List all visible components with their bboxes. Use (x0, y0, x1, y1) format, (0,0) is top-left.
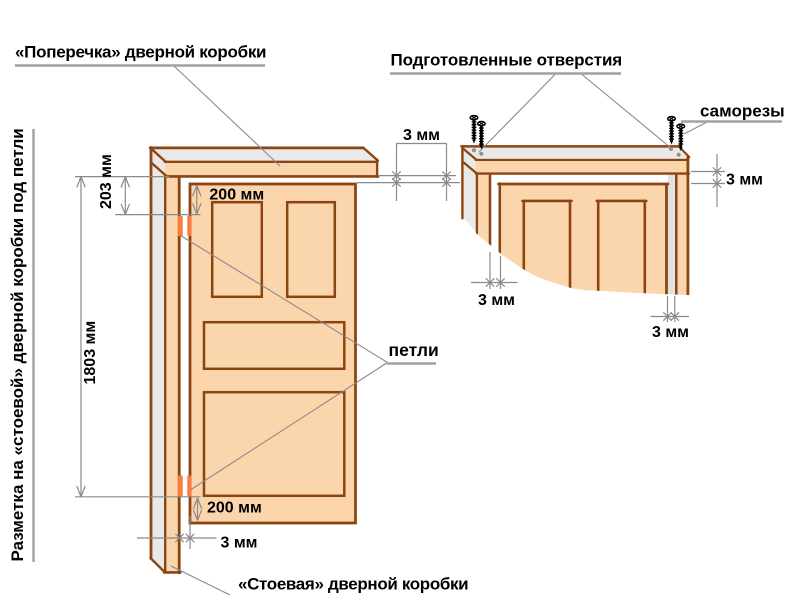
svg-text:саморезы: саморезы (700, 102, 785, 121)
svg-text:Разметка на «стоевой» дверной: Разметка на «стоевой» дверной коробки по… (8, 128, 27, 561)
svg-text:«Поперечка» дверной коробки: «Поперечка» дверной коробки (15, 43, 266, 62)
svg-text:3 мм: 3 мм (478, 292, 515, 309)
svg-text:200 мм: 200 мм (207, 500, 262, 517)
svg-text:петли: петли (389, 340, 439, 360)
svg-text:3 мм: 3 мм (652, 324, 689, 341)
svg-text:Подготовленные отверстия: Подготовленные отверстия (391, 51, 623, 70)
svg-text:3 мм: 3 мм (726, 172, 763, 189)
svg-text:203 мм: 203 мм (98, 154, 115, 209)
svg-text:3 мм: 3 мм (403, 127, 440, 144)
svg-text:1803 мм: 1803 мм (82, 321, 99, 385)
svg-text:3 мм: 3 мм (221, 535, 258, 552)
svg-text:200 мм: 200 мм (209, 187, 264, 204)
svg-text:«Стоевая» дверной коробки: «Стоевая» дверной коробки (238, 575, 468, 594)
